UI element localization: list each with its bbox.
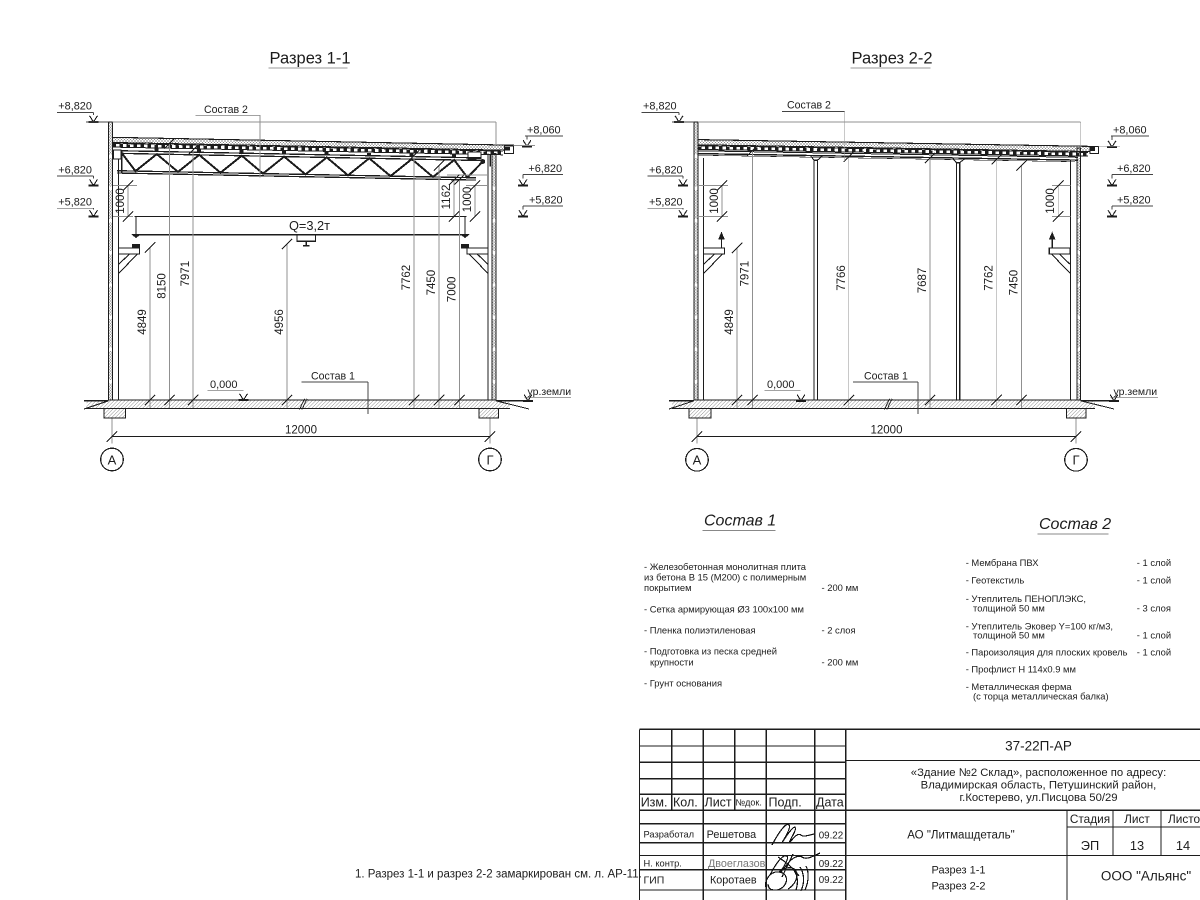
svg-text:Г: Г: [486, 452, 493, 467]
svg-text:+6,820: +6,820: [1117, 163, 1151, 175]
svg-text:(с торца металлическая балка): (с торца металлическая балка): [973, 691, 1109, 702]
svg-text:09.22: 09.22: [819, 831, 844, 842]
svg-text:Разрез 2-2: Разрез 2-2: [852, 50, 933, 68]
svg-text:09.22: 09.22: [819, 875, 844, 886]
svg-text:7687: 7687: [917, 268, 929, 294]
svg-text:- Сетка армирующая Ø3 100х100: - Сетка армирующая Ø3 100х100 мм: [644, 604, 804, 615]
svg-text:7766: 7766: [836, 265, 848, 291]
svg-text:09.22: 09.22: [819, 859, 844, 870]
svg-text:Лист: Лист: [705, 795, 732, 809]
svg-text:Состав 1: Состав 1: [704, 513, 776, 530]
svg-text:АО "Литмашдеталь": АО "Литмашдеталь": [907, 829, 1014, 841]
svg-text:+6,820: +6,820: [649, 164, 683, 176]
svg-text:из бетона В 15 (М200) с полиме: из бетона В 15 (М200) с полимерным: [644, 572, 806, 583]
svg-text:1000: 1000: [115, 188, 127, 214]
svg-text:- Грунт основания: - Грунт основания: [644, 678, 722, 689]
svg-text:37-22П-АР: 37-22П-АР: [1005, 739, 1072, 754]
svg-text:- 200 мм: - 200 мм: [822, 582, 859, 593]
svg-text:Состав 2: Состав 2: [1039, 516, 1111, 533]
svg-text:- Мембрана ПВХ: - Мембрана ПВХ: [966, 557, 1040, 568]
svg-text:7450: 7450: [1009, 270, 1021, 296]
svg-text:Разрез 1-1: Разрез 1-1: [270, 50, 351, 68]
svg-text:12000: 12000: [285, 424, 317, 436]
svg-text:1162: 1162: [441, 185, 453, 210]
svg-text:Разрез 1-1: Разрез 1-1: [931, 865, 985, 877]
svg-text:толщиной 50 мм: толщиной 50 мм: [973, 630, 1045, 641]
svg-text:Состав 1: Состав 1: [864, 370, 908, 382]
svg-text:+8,060: +8,060: [1113, 124, 1147, 136]
svg-text:- 1 слой: - 1 слой: [1137, 647, 1171, 658]
svg-text:Н. контр.: Н. контр.: [644, 859, 682, 869]
svg-text:Двоеглазов: Двоеглазов: [708, 858, 766, 870]
svg-text:Дата: Дата: [816, 795, 844, 809]
svg-text:+6,820: +6,820: [528, 163, 562, 175]
svg-text:ООО "Альянс": ООО "Альянс": [1101, 868, 1191, 883]
svg-text:+5,820: +5,820: [1117, 194, 1151, 206]
svg-text:+8,820: +8,820: [58, 101, 92, 113]
svg-text:толщиной 50 мм: толщиной 50 мм: [973, 603, 1045, 614]
svg-text:0,000: 0,000: [210, 379, 238, 391]
svg-text:Владимирская область, Петушинс: Владимирская область, Петушинский район,: [921, 779, 1157, 791]
svg-text:«Здание №2 Склад», расположенн: «Здание №2 Склад», расположенное по адре…: [911, 767, 1166, 779]
svg-text:Состав 2: Состав 2: [204, 104, 248, 116]
svg-text:7000: 7000: [446, 277, 458, 303]
svg-text:0,000: 0,000: [767, 379, 795, 391]
svg-text:- 2 слоя: - 2 слоя: [822, 625, 856, 636]
svg-text:1000: 1000: [1045, 188, 1057, 214]
svg-text:+5,820: +5,820: [529, 194, 563, 206]
svg-text:Q=3,2т: Q=3,2т: [289, 218, 330, 233]
svg-text:12000: 12000: [871, 424, 903, 436]
svg-text:- Геотекстиль: - Геотекстиль: [966, 575, 1025, 586]
svg-text:4849: 4849: [724, 309, 736, 335]
svg-text:Г: Г: [1072, 453, 1079, 468]
svg-text:Стадия: Стадия: [1070, 812, 1110, 826]
svg-text:Лист: Лист: [1124, 812, 1150, 826]
svg-text:Изм.: Изм.: [641, 795, 668, 809]
svg-text:крупности: крупности: [650, 657, 694, 668]
svg-text:7450: 7450: [426, 270, 438, 296]
svg-text:Решетова: Решетова: [707, 829, 757, 841]
svg-text:1. Разрез 1-1 и разрез 2-2 зам: 1. Разрез 1-1 и разрез 2-2 замаркирован …: [355, 869, 642, 881]
svg-text:А: А: [693, 453, 702, 468]
svg-text:+5,820: +5,820: [58, 197, 92, 209]
svg-text:7762: 7762: [984, 265, 996, 291]
svg-text:7971: 7971: [180, 261, 192, 287]
svg-text:покрытием: покрытием: [644, 582, 692, 593]
svg-text:Состав 1: Состав 1: [311, 370, 355, 382]
svg-text:ур.земли: ур.земли: [528, 386, 572, 398]
svg-text:14: 14: [1176, 838, 1190, 853]
svg-text:7971: 7971: [740, 261, 752, 287]
svg-text:- Профлист Н 114х0.9 мм: - Профлист Н 114х0.9 мм: [966, 664, 1076, 675]
svg-text:ГИП: ГИП: [644, 874, 665, 886]
svg-text:4849: 4849: [137, 309, 149, 335]
svg-text:Разработал: Разработал: [644, 830, 695, 840]
svg-text:+8,820: +8,820: [643, 101, 677, 113]
svg-text:г.Костерево, ул.Писцова 50/29: г.Костерево, ул.Писцова 50/29: [959, 792, 1117, 804]
svg-text:ЭП: ЭП: [1081, 838, 1099, 853]
svg-text:№док.: №док.: [736, 798, 762, 808]
svg-text:- 200 мм: - 200 мм: [822, 657, 859, 668]
svg-text:- 1 слой: - 1 слой: [1137, 575, 1171, 586]
svg-text:Состав 2: Состав 2: [787, 100, 831, 112]
svg-text:Листов: Листов: [1168, 812, 1200, 826]
svg-text:4956: 4956: [274, 309, 286, 335]
svg-text:- 3 слоя: - 3 слоя: [1137, 603, 1171, 614]
svg-text:- Пленка полиэтиленовая: - Пленка полиэтиленовая: [644, 625, 756, 636]
svg-text:Кол.: Кол.: [673, 795, 698, 809]
svg-text:- Подготовка из песка средней: - Подготовка из песка средней: [644, 646, 777, 657]
svg-text:- Пароизоляция для плоских кро: - Пароизоляция для плоских кровель: [966, 647, 1128, 658]
svg-text:8150: 8150: [156, 273, 168, 299]
svg-text:ур.земли: ур.земли: [1114, 386, 1158, 398]
svg-text:- 1 слой: - 1 слой: [1137, 630, 1171, 641]
svg-text:А: А: [108, 452, 117, 467]
svg-text:7762: 7762: [401, 265, 413, 291]
svg-text:1000: 1000: [462, 187, 474, 213]
svg-text:- Железобетонная монолитная п: - Железобетонная монолитная плита: [644, 561, 807, 572]
svg-text:+6,820: +6,820: [58, 164, 92, 176]
svg-text:13: 13: [1130, 838, 1144, 853]
svg-text:+5,820: +5,820: [649, 197, 683, 209]
svg-text:- 1 слой: - 1 слой: [1137, 557, 1171, 568]
svg-text:Разрез 2-2: Разрез 2-2: [931, 881, 985, 893]
svg-text:Коротаев: Коротаев: [710, 874, 757, 886]
svg-text:+8,060: +8,060: [527, 124, 561, 136]
svg-text:1000: 1000: [709, 188, 721, 214]
svg-text:Подп.: Подп.: [769, 795, 802, 809]
